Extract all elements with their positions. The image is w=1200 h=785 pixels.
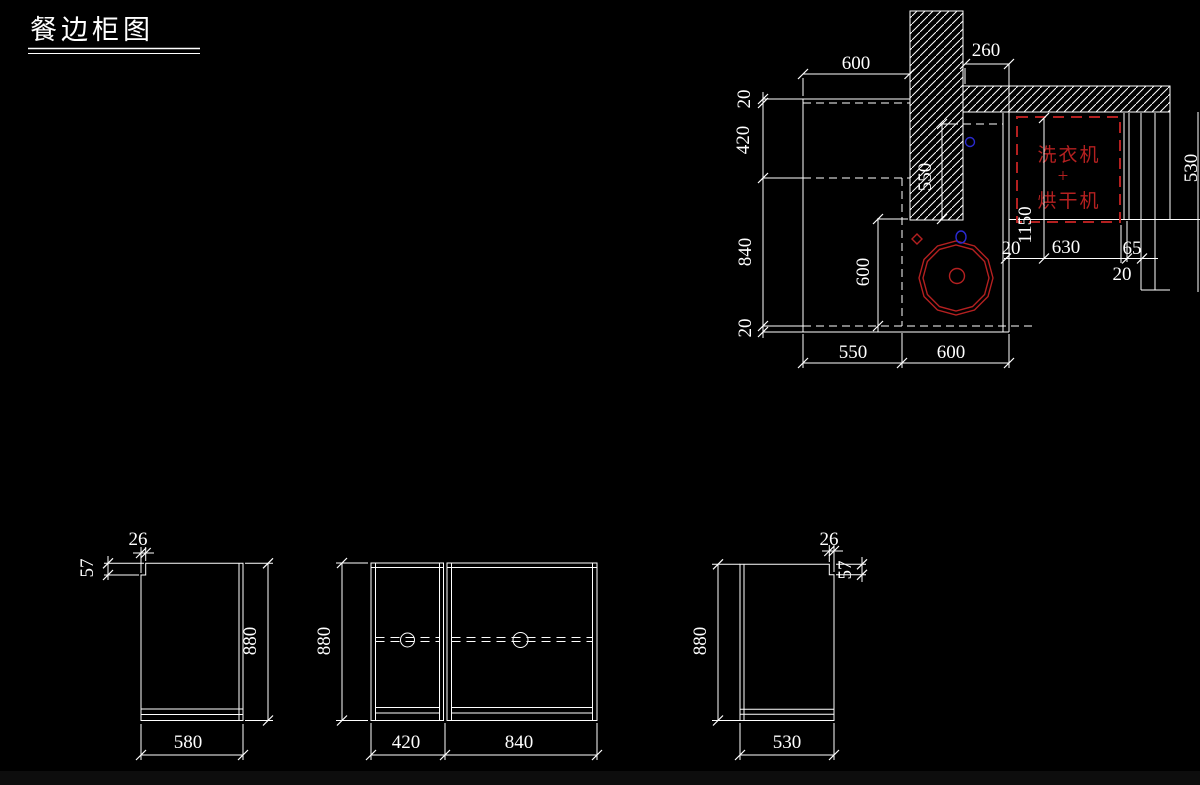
dim-notch-width: 26	[820, 529, 839, 550]
washer-label-plus: +	[1058, 166, 1071, 187]
dim-notch-height: 57	[77, 559, 98, 578]
dim-left-top-gap: 20	[734, 90, 755, 109]
elevation-left-view: 26 57 880 580	[77, 529, 273, 760]
dim-right-20: 20	[1113, 264, 1132, 285]
dim-left-width: 420	[392, 732, 421, 753]
wall-hatch-band	[963, 86, 1170, 112]
dim-width: 580	[174, 732, 203, 753]
blue-marker-basin	[956, 231, 966, 243]
elevation-right-view: 26 57 880 530	[690, 529, 867, 760]
washer-label-line1: 洗衣机	[1037, 144, 1100, 166]
door-handle-left	[401, 633, 415, 647]
dim-height: 880	[690, 627, 711, 656]
dim-wall-length: 550	[915, 163, 936, 192]
cad-canvas[interactable]: 餐边柜图	[0, 0, 1200, 785]
dim-left-bottom-gap: 20	[735, 319, 756, 338]
plan-view: 洗衣机 + 烘干机	[733, 11, 1200, 368]
dim-top-width: 600	[842, 53, 871, 74]
dim-notch-width: 26	[129, 529, 148, 550]
washer-label-line2: 烘干机	[1037, 190, 1100, 212]
dimension-ticks	[337, 558, 602, 760]
page-title: 餐边柜图	[30, 15, 154, 45]
dim-left-upper-depth: 420	[733, 126, 754, 155]
cabinet-outline	[141, 563, 243, 720]
dim-washer-width: 630	[1052, 237, 1081, 258]
dim-bottom-left: 550	[839, 342, 868, 363]
door-handle-right	[513, 633, 528, 648]
dim-height: 880	[314, 627, 335, 656]
status-strip	[0, 771, 1200, 785]
dim-bottom-right: 600	[937, 342, 966, 363]
drain-circle	[950, 269, 965, 284]
dim-right-width: 840	[505, 732, 534, 753]
dim-inner-depth: 600	[853, 258, 874, 287]
blue-marker-wall	[966, 138, 975, 147]
dim-height: 880	[240, 627, 261, 656]
drawing-title: 餐边柜图	[28, 15, 200, 54]
dim-width: 530	[773, 732, 802, 753]
cabinet-outline	[740, 564, 834, 720]
dim-notch-height: 57	[835, 561, 856, 580]
faucet-diamond	[912, 234, 922, 244]
elevation-middle-view: 880 420 840	[314, 558, 602, 760]
dim-edge-clipped: 530	[1181, 154, 1200, 183]
dim-wall-right: 260	[972, 40, 1001, 61]
dim-right-65: 65	[1123, 238, 1142, 259]
dim-washer-height: 1150	[1015, 206, 1036, 243]
dim-left-lower-depth: 840	[735, 238, 756, 267]
